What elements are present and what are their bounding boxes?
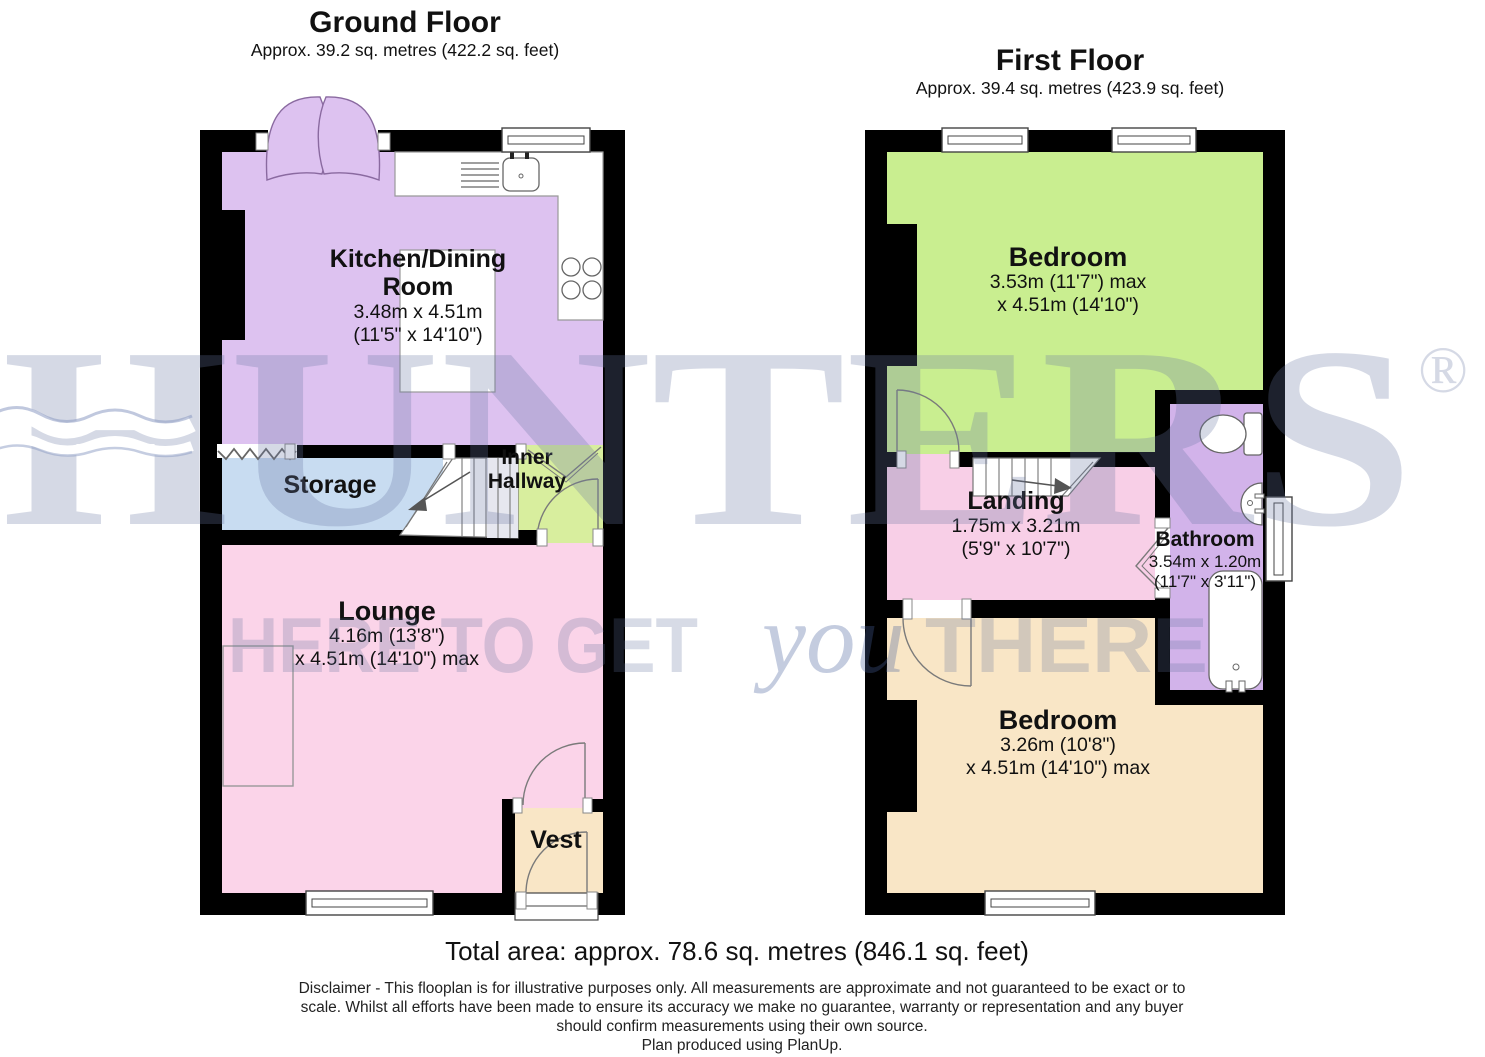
bathroom-label: Bathroom 3.54m x 1.20m (11'7" x 3'11") [1149, 528, 1261, 592]
floorplan-page: Ground Floor Approx. 39.2 sq. metres (42… [0, 0, 1485, 1057]
produced-line: Plan produced using PlanUp. [299, 1036, 1186, 1055]
storage-label: Storage [283, 471, 376, 499]
inner-hallway-label: Inner Hallway [488, 446, 566, 494]
disclaimer-line: scale. Whilst all efforts have been made… [299, 998, 1186, 1017]
bedroom2-label: Bedroom 3.26m (10'8") x 4.51m (14'10") m… [966, 706, 1150, 780]
ground-floor-title: Ground Floor [251, 6, 559, 40]
landing-label: Landing 1.75m x 3.21m (5'9" x 10'7") [952, 487, 1081, 561]
ground-floor-subtitle: Approx. 39.2 sq. metres (422.2 sq. feet) [251, 40, 559, 61]
first-floor-subtitle: Approx. 39.4 sq. metres (423.9 sq. feet) [916, 78, 1224, 99]
lounge-label: Lounge 4.16m (13'8") x 4.51m (14'10") ma… [295, 597, 479, 671]
total-area-line: Total area: approx. 78.6 sq. metres (846… [445, 936, 1029, 967]
first-floor-title-block: First Floor Approx. 39.4 sq. metres (423… [916, 44, 1224, 99]
disclaimer-block: Disclaimer - This flooplan is for illust… [299, 979, 1186, 1055]
vest-label: Vest [530, 826, 581, 854]
bedroom1-label: Bedroom 3.53m (11'7") max x 4.51m (14'10… [990, 243, 1147, 317]
kitchen-label: Kitchen/Dining Room 3.48m x 4.51m (11'5"… [330, 245, 506, 347]
disclaimer-line: Disclaimer - This flooplan is for illust… [299, 979, 1186, 998]
disclaimer-line: should confirm measurements using their … [299, 1017, 1186, 1036]
labels-layer: Ground Floor Approx. 39.2 sq. metres (42… [0, 0, 1485, 1057]
ground-floor-title-block: Ground Floor Approx. 39.2 sq. metres (42… [251, 6, 559, 61]
first-floor-title: First Floor [916, 44, 1224, 78]
